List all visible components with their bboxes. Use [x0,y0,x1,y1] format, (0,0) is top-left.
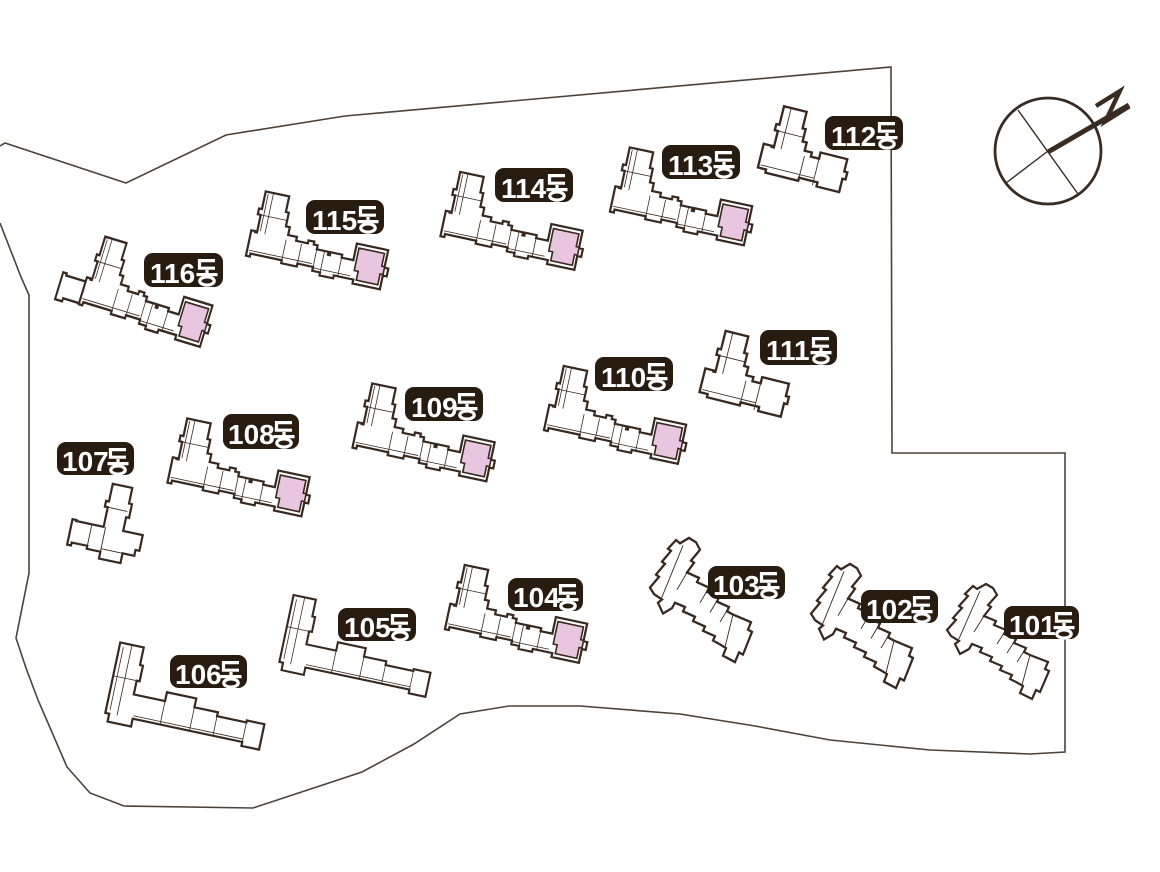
svg-text:116: 116 [150,258,195,289]
svg-text:107: 107 [62,446,109,477]
svg-text:102: 102 [866,594,913,625]
svg-text:112: 112 [831,121,876,152]
svg-text:111: 111 [766,335,810,366]
svg-text:113: 113 [668,150,713,181]
svg-text:114: 114 [501,173,547,204]
svg-text:101: 101 [1009,610,1056,641]
svg-text:109: 109 [411,392,458,423]
svg-text:105: 105 [344,612,391,643]
svg-text:110: 110 [601,362,646,393]
svg-text:104: 104 [513,582,560,613]
svg-text:115: 115 [312,205,357,236]
svg-text:106: 106 [175,659,222,690]
svg-text:108: 108 [228,419,275,450]
svg-text:103: 103 [713,570,760,601]
